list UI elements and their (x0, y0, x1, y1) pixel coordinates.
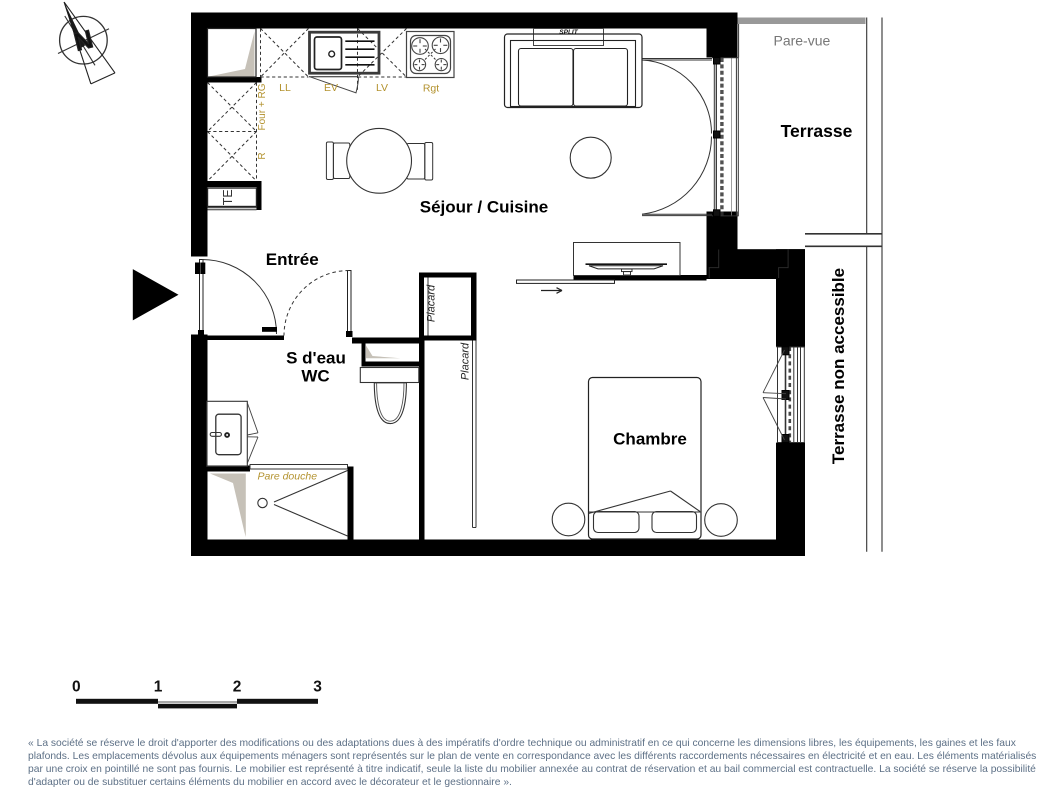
svg-text:Entrée: Entrée (266, 250, 319, 269)
svg-text:Pare douche: Pare douche (258, 471, 318, 483)
svg-text:Séjour / Cuisine: Séjour / Cuisine (420, 198, 548, 217)
svg-text:LV: LV (376, 82, 388, 94)
svg-text:par une croix en pointillé ne: par une croix en pointillé ne sont pas f… (28, 764, 1036, 775)
svg-text:1: 1 (154, 678, 163, 695)
svg-text:Pare-vue: Pare-vue (773, 33, 830, 49)
svg-text:3: 3 (313, 678, 322, 695)
svg-text:EV: EV (324, 82, 338, 94)
svg-text:Terrasse non accessible: Terrasse non accessible (829, 268, 848, 464)
svg-text:« La société se réserve le dro: « La société se réserve le droit d'appor… (28, 738, 1017, 749)
svg-text:TE: TE (221, 189, 235, 205)
svg-text:SPLIT: SPLIT (559, 29, 578, 36)
svg-text:Rgt: Rgt (423, 83, 439, 95)
svg-text:plafonds. Les emplacements dév: plafonds. Les emplacements dévolus aux é… (28, 751, 1036, 762)
svg-text:Terrasse: Terrasse (781, 121, 853, 141)
svg-text:LL: LL (279, 82, 291, 94)
svg-text:Placard: Placard (425, 284, 437, 322)
svg-text:Chambre: Chambre (613, 430, 687, 449)
svg-text:R: R (257, 152, 268, 159)
svg-text:d'adapter ou de substituer cer: d'adapter ou de substituer certains élém… (28, 777, 512, 788)
svg-text:S d'eau: S d'eau (286, 349, 346, 368)
svg-text:Four + RG: Four + RG (257, 83, 268, 130)
svg-text:Placard: Placard (460, 342, 472, 380)
svg-text:0: 0 (72, 678, 81, 695)
svg-text:WC: WC (301, 367, 329, 386)
svg-text:2: 2 (233, 678, 242, 695)
